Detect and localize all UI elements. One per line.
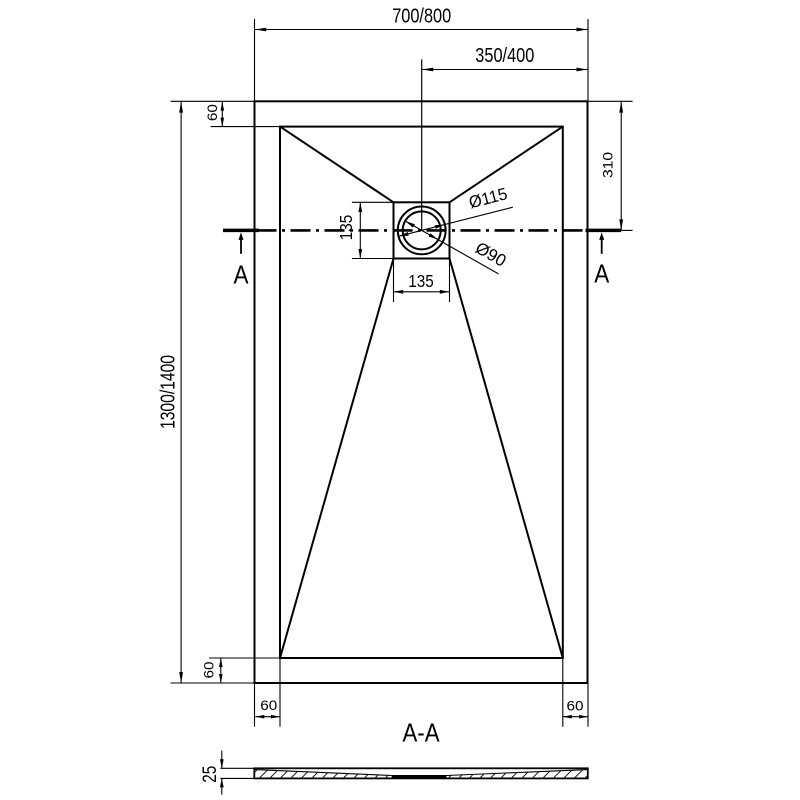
svg-text:135: 135 — [408, 271, 434, 291]
svg-text:60: 60 — [567, 698, 584, 714]
svg-text:A: A — [594, 259, 610, 289]
svg-text:350/400: 350/400 — [475, 45, 534, 67]
svg-text:135: 135 — [336, 215, 356, 241]
svg-text:A-A: A-A — [403, 718, 441, 748]
svg-text:25: 25 — [200, 766, 221, 783]
svg-text:310: 310 — [600, 152, 616, 178]
svg-text:60: 60 — [201, 661, 217, 678]
svg-text:A: A — [234, 260, 250, 290]
svg-text:1300/1400: 1300/1400 — [157, 355, 179, 429]
svg-text:60: 60 — [204, 104, 220, 121]
svg-text:60: 60 — [260, 697, 277, 713]
svg-text:700/800: 700/800 — [392, 5, 451, 27]
